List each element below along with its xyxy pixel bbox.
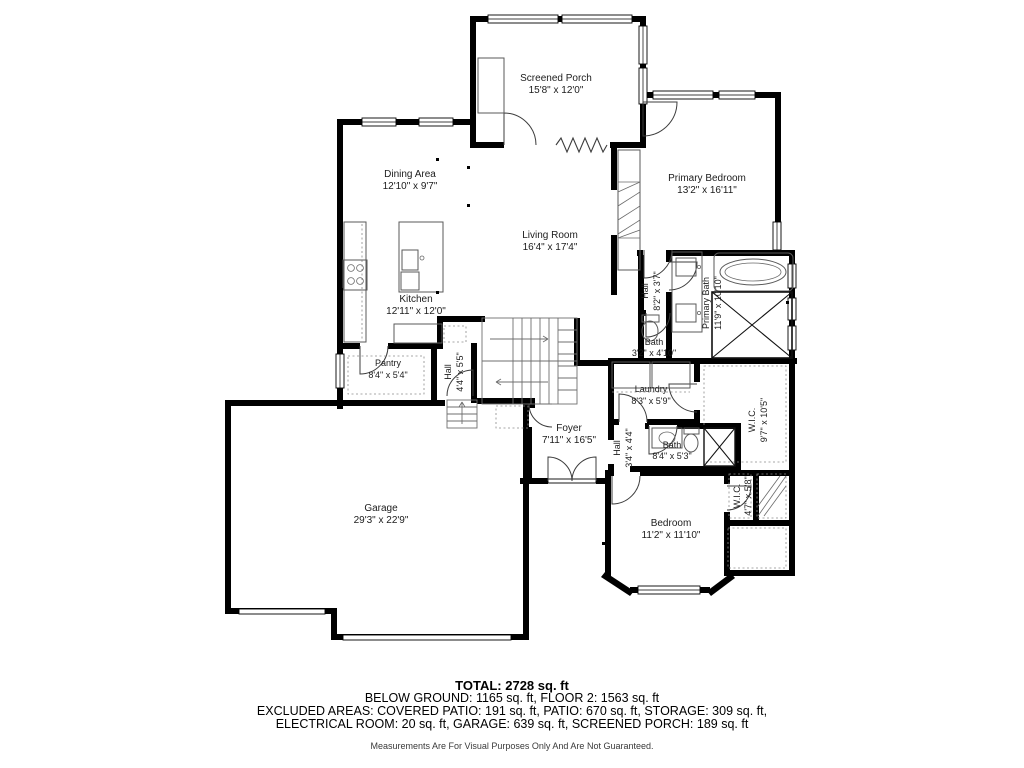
room-dims-bath-small: 3'2" x 4'10" [632, 348, 676, 358]
room-dims-kitchen: 12'11" x 12'0" [386, 306, 446, 317]
room-label-wic-primary: W.I.C. [747, 408, 757, 433]
room-dims-bedroom: 11'2" x 11'10" [642, 530, 701, 541]
staircase [447, 318, 577, 428]
area-line-excluded-2: ELECTRICAL ROOM: 20 sq. ft, GARAGE: 639 … [0, 718, 1024, 731]
room-label-laundry: Laundry [635, 384, 668, 394]
room-dims-hall-foyer: 3'4" x 4'4" [624, 428, 634, 467]
room-dims-dining-area: 12'10" x 9'7" [383, 181, 438, 192]
room-label-kitchen: Kitchen [399, 294, 432, 305]
room-label-foyer: Foyer [556, 423, 582, 434]
room-label-primary-bath: Primary Bath [701, 277, 711, 329]
room-label-bath-small: Bath [645, 337, 664, 347]
garage-steps [447, 400, 477, 428]
room-label-garage: Garage [364, 503, 398, 514]
garage-door [239, 479, 596, 640]
room-dims-bath-hall: 8'4" x 5'3" [652, 451, 691, 461]
primary-bath-fixtures [672, 252, 793, 358]
disclaimer-text: Measurements Are For Visual Purposes Onl… [0, 741, 1024, 751]
room-dims-hall-upper: 8'2" x 3'7" [652, 271, 662, 310]
room-dims-laundry: 8'3" x 5'9" [631, 396, 670, 406]
area-summary: TOTAL: 2728 sq. ft BELOW GROUND: 1165 sq… [0, 679, 1024, 751]
room-label-dining-area: Dining Area [384, 169, 436, 180]
shower [712, 292, 792, 358]
room-dims-foyer: 7'11" x 16'5" [542, 435, 597, 446]
floor-plan-canvas: Screened Porch 15'8" x 12'0" Dining Area… [0, 0, 1024, 768]
shower-2 [704, 428, 735, 466]
room-dims-garage: 29'3" x 22'9" [354, 515, 409, 526]
room-label-screened-porch: Screened Porch [520, 73, 592, 84]
fireplace [618, 150, 640, 270]
screen-wall-symbol [556, 138, 607, 152]
room-label-wic-bedroom: W.I.C. [732, 484, 742, 509]
floor-plan-page: Screened Porch 15'8" x 12'0" Dining Area… [0, 0, 1024, 768]
room-label-hall-kitchen: Hall [443, 364, 453, 380]
room-label-primary-bedroom: Primary Bedroom [668, 173, 746, 184]
room-label-hall-upper: Hall [640, 283, 650, 299]
room-dims-wic-bedroom: 4'7" x 5'8" [743, 476, 753, 515]
room-dims-primary-bedroom: 13'2" x 16'11" [677, 185, 737, 196]
room-dims-pantry: 8'4" x 5'4" [368, 370, 407, 380]
kitchen-fixtures [343, 222, 466, 343]
room-dims-wic-primary: 9'7" x 10'5" [759, 398, 769, 442]
room-label-pantry: Pantry [375, 358, 402, 368]
room-dims-screened-porch: 15'8" x 12'0" [529, 85, 584, 96]
room-label-living-room: Living Room [522, 230, 578, 241]
room-label-bath-hall: Bath [663, 440, 682, 450]
room-dims-living-room: 16'4" x 17'4" [523, 242, 578, 253]
room-label-hall-foyer: Hall [612, 440, 622, 456]
room-label-bedroom: Bedroom [651, 518, 692, 529]
room-dims-hall-kitchen: 4'4" x 5'5" [455, 352, 465, 391]
room-dims-primary-bath: 11'9" x 10'10" [713, 276, 723, 330]
